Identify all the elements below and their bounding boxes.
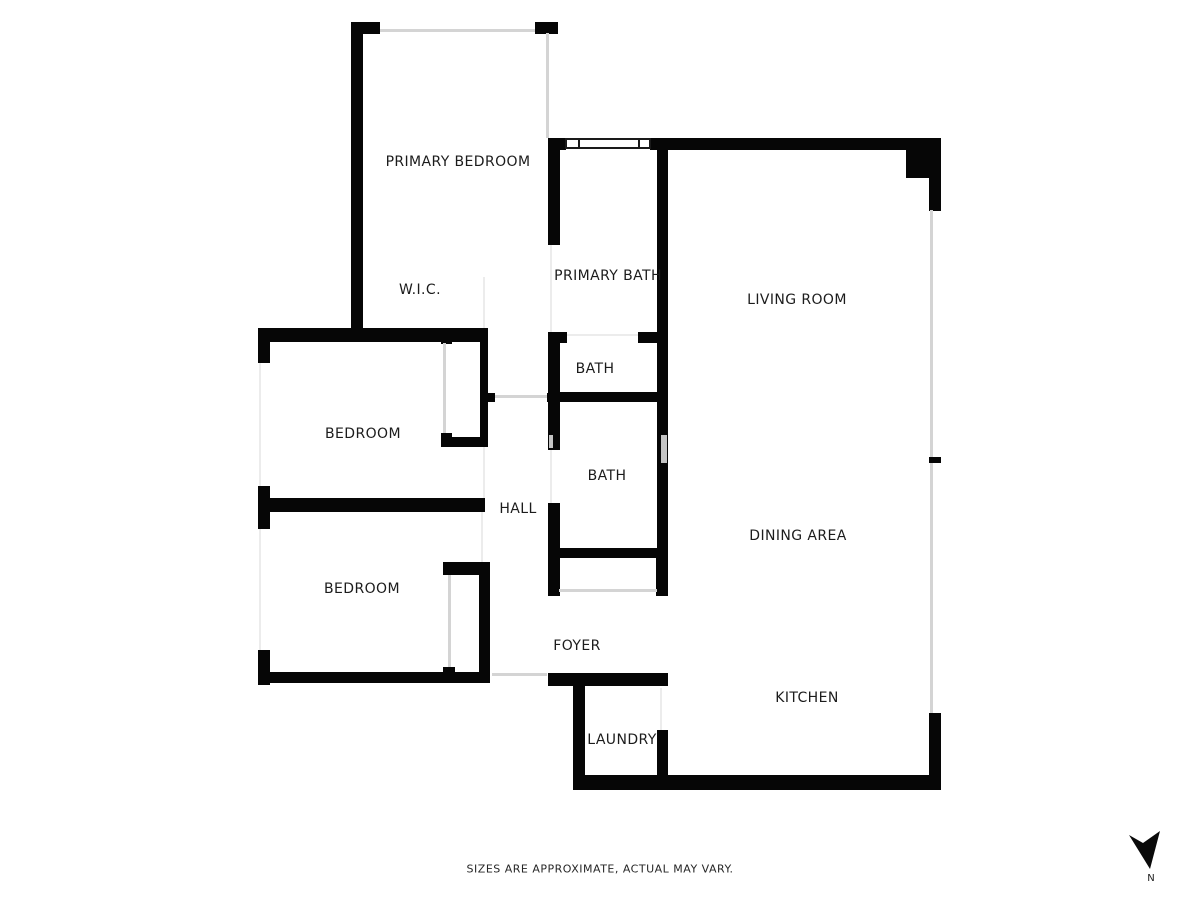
room-label-bath-upper: BATH bbox=[576, 361, 615, 377]
disclaimer-text: SIZES ARE APPROXIMATE, ACTUAL MAY VARY. bbox=[467, 863, 734, 876]
wall-segment bbox=[548, 138, 566, 150]
wall-segment bbox=[548, 673, 668, 686]
opening-line bbox=[930, 210, 933, 457]
opening-line bbox=[443, 343, 446, 433]
room-label-bedroom-middle: BEDROOM bbox=[325, 426, 401, 442]
north-label: N bbox=[1147, 873, 1154, 884]
door-opening-line bbox=[483, 447, 485, 498]
opening-line bbox=[930, 463, 933, 713]
room-label-dining-area: DINING AREA bbox=[749, 528, 846, 544]
wall-segment bbox=[929, 178, 941, 211]
wall-segment bbox=[441, 437, 488, 447]
wall-segment bbox=[657, 730, 668, 776]
wall-segment bbox=[479, 575, 490, 677]
window-divider bbox=[638, 140, 640, 147]
opening-line bbox=[546, 33, 549, 138]
floorplan-canvas: PRIMARY BEDROOMW.I.C.PRIMARY BATHLIVING … bbox=[0, 0, 1200, 900]
door-opening-line bbox=[259, 529, 261, 650]
wall-segment bbox=[657, 150, 668, 593]
window-symbol bbox=[565, 138, 651, 149]
opening-line bbox=[559, 589, 657, 592]
door-opening-line bbox=[567, 334, 638, 336]
door-opening-line bbox=[660, 688, 662, 730]
room-label-kitchen: KITCHEN bbox=[775, 690, 838, 706]
wall-segment bbox=[443, 562, 490, 575]
wall-segment bbox=[656, 558, 668, 596]
wall-segment bbox=[260, 498, 485, 512]
room-label-foyer: FOYER bbox=[553, 638, 600, 654]
north-arrow-icon: N bbox=[1115, 820, 1185, 900]
north-arrow-shape bbox=[1129, 831, 1160, 869]
wall-segment bbox=[548, 548, 668, 558]
room-label-hall: HALL bbox=[499, 501, 536, 517]
wall-segment bbox=[548, 332, 560, 450]
room-label-wic: W.I.C. bbox=[399, 282, 441, 298]
wall-notch bbox=[549, 435, 553, 448]
wall-segment bbox=[929, 713, 941, 776]
opening-line bbox=[448, 575, 451, 667]
wall-segment bbox=[548, 392, 668, 402]
room-label-primary-bath: PRIMARY BATH bbox=[554, 268, 662, 284]
room-label-living-room: LIVING ROOM bbox=[747, 292, 847, 308]
wall-segment bbox=[548, 332, 567, 343]
room-label-bedroom-lower: BEDROOM bbox=[324, 581, 400, 597]
opening-line bbox=[380, 29, 535, 32]
wall-segment bbox=[351, 22, 363, 342]
wall-segment bbox=[260, 328, 488, 342]
wall-segment bbox=[548, 150, 560, 245]
room-label-primary-bedroom: PRIMARY BEDROOM bbox=[386, 154, 531, 170]
wall-segment bbox=[573, 775, 941, 790]
window-divider bbox=[578, 140, 580, 147]
wall-segment bbox=[573, 686, 585, 776]
door-opening-line bbox=[259, 363, 261, 486]
wall-segment bbox=[258, 672, 490, 683]
room-label-laundry: LAUNDRY bbox=[587, 732, 656, 748]
door-opening-line bbox=[550, 450, 552, 503]
wall-segment bbox=[650, 138, 907, 150]
wall-notch bbox=[661, 435, 667, 463]
door-opening-line bbox=[481, 512, 483, 562]
wall-segment bbox=[547, 393, 560, 402]
room-label-bath-lower: BATH bbox=[588, 468, 627, 484]
door-opening-line bbox=[550, 245, 552, 332]
opening-line bbox=[492, 673, 547, 676]
wall-segment bbox=[480, 330, 488, 447]
door-opening-line bbox=[483, 277, 485, 328]
wall-segment bbox=[906, 138, 941, 178]
opening-line bbox=[495, 395, 547, 398]
